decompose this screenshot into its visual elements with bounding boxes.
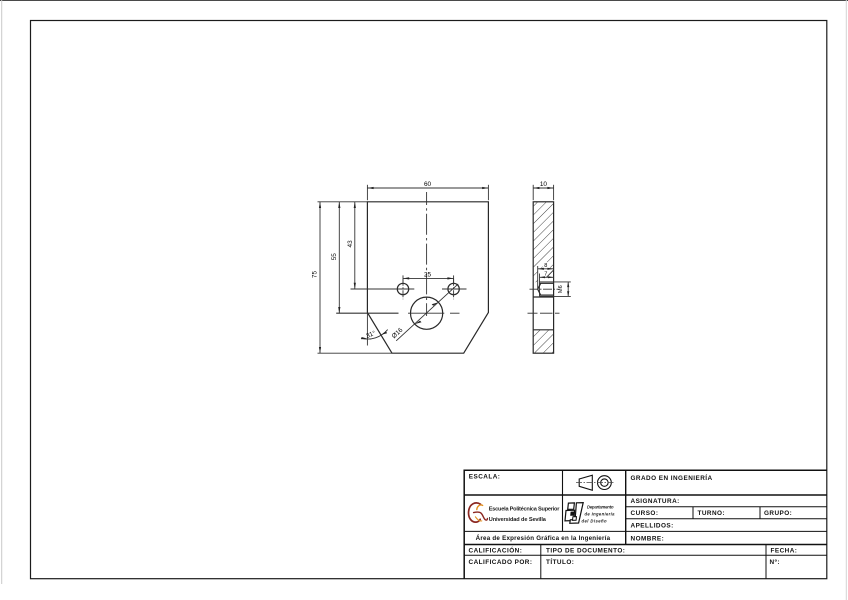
svg-text:Escuela Politécnica Superior: Escuela Politécnica Superior xyxy=(489,507,560,513)
svg-text:CALIFICADO POR:: CALIFICADO POR: xyxy=(469,559,533,566)
svg-text:ESCALA:: ESCALA: xyxy=(469,474,501,481)
svg-text:Universidad de Sevilla: Universidad de Sevilla xyxy=(489,517,547,523)
svg-text:55: 55 xyxy=(331,253,338,261)
svg-text:GRADO EN INGENIERÍA: GRADO EN INGENIERÍA xyxy=(631,473,713,482)
svg-text:43: 43 xyxy=(347,240,354,248)
svg-text:75: 75 xyxy=(312,271,319,279)
svg-text:GRUPO:: GRUPO: xyxy=(764,510,792,517)
svg-text:25: 25 xyxy=(424,271,432,278)
svg-text:CALIFICACIÓN:: CALIFICACIÓN: xyxy=(469,546,523,555)
svg-text:TIPO DE DOCUMENTO:: TIPO DE DOCUMENTO: xyxy=(546,548,625,555)
svg-text:NOMBRE:: NOMBRE: xyxy=(631,536,665,543)
svg-text:60: 60 xyxy=(424,181,432,188)
svg-text:TURNO:: TURNO: xyxy=(698,510,726,517)
svg-text:TÍTULO:: TÍTULO: xyxy=(546,557,574,566)
svg-text:Área de Expresión Gráfica en l: Área de Expresión Gráfica en la Ingenier… xyxy=(476,535,611,542)
svg-text:CURSO:: CURSO: xyxy=(631,510,659,517)
svg-text:8: 8 xyxy=(544,263,547,269)
svg-text:M6: M6 xyxy=(558,285,564,293)
svg-text:de Ingeniería: de Ingeniería xyxy=(585,512,616,517)
svg-text:7: 7 xyxy=(544,272,547,278)
svg-text:del Diseño: del Diseño xyxy=(582,519,607,524)
svg-text:10: 10 xyxy=(540,181,548,188)
svg-text:APELLIDOS:: APELLIDOS: xyxy=(631,523,674,530)
svg-text:Departamento: Departamento xyxy=(587,505,614,510)
svg-text:Nº:: Nº: xyxy=(770,559,780,566)
svg-text:ASIGNATURA:: ASIGNATURA: xyxy=(631,498,680,505)
svg-text:FECHA:: FECHA: xyxy=(771,548,798,555)
